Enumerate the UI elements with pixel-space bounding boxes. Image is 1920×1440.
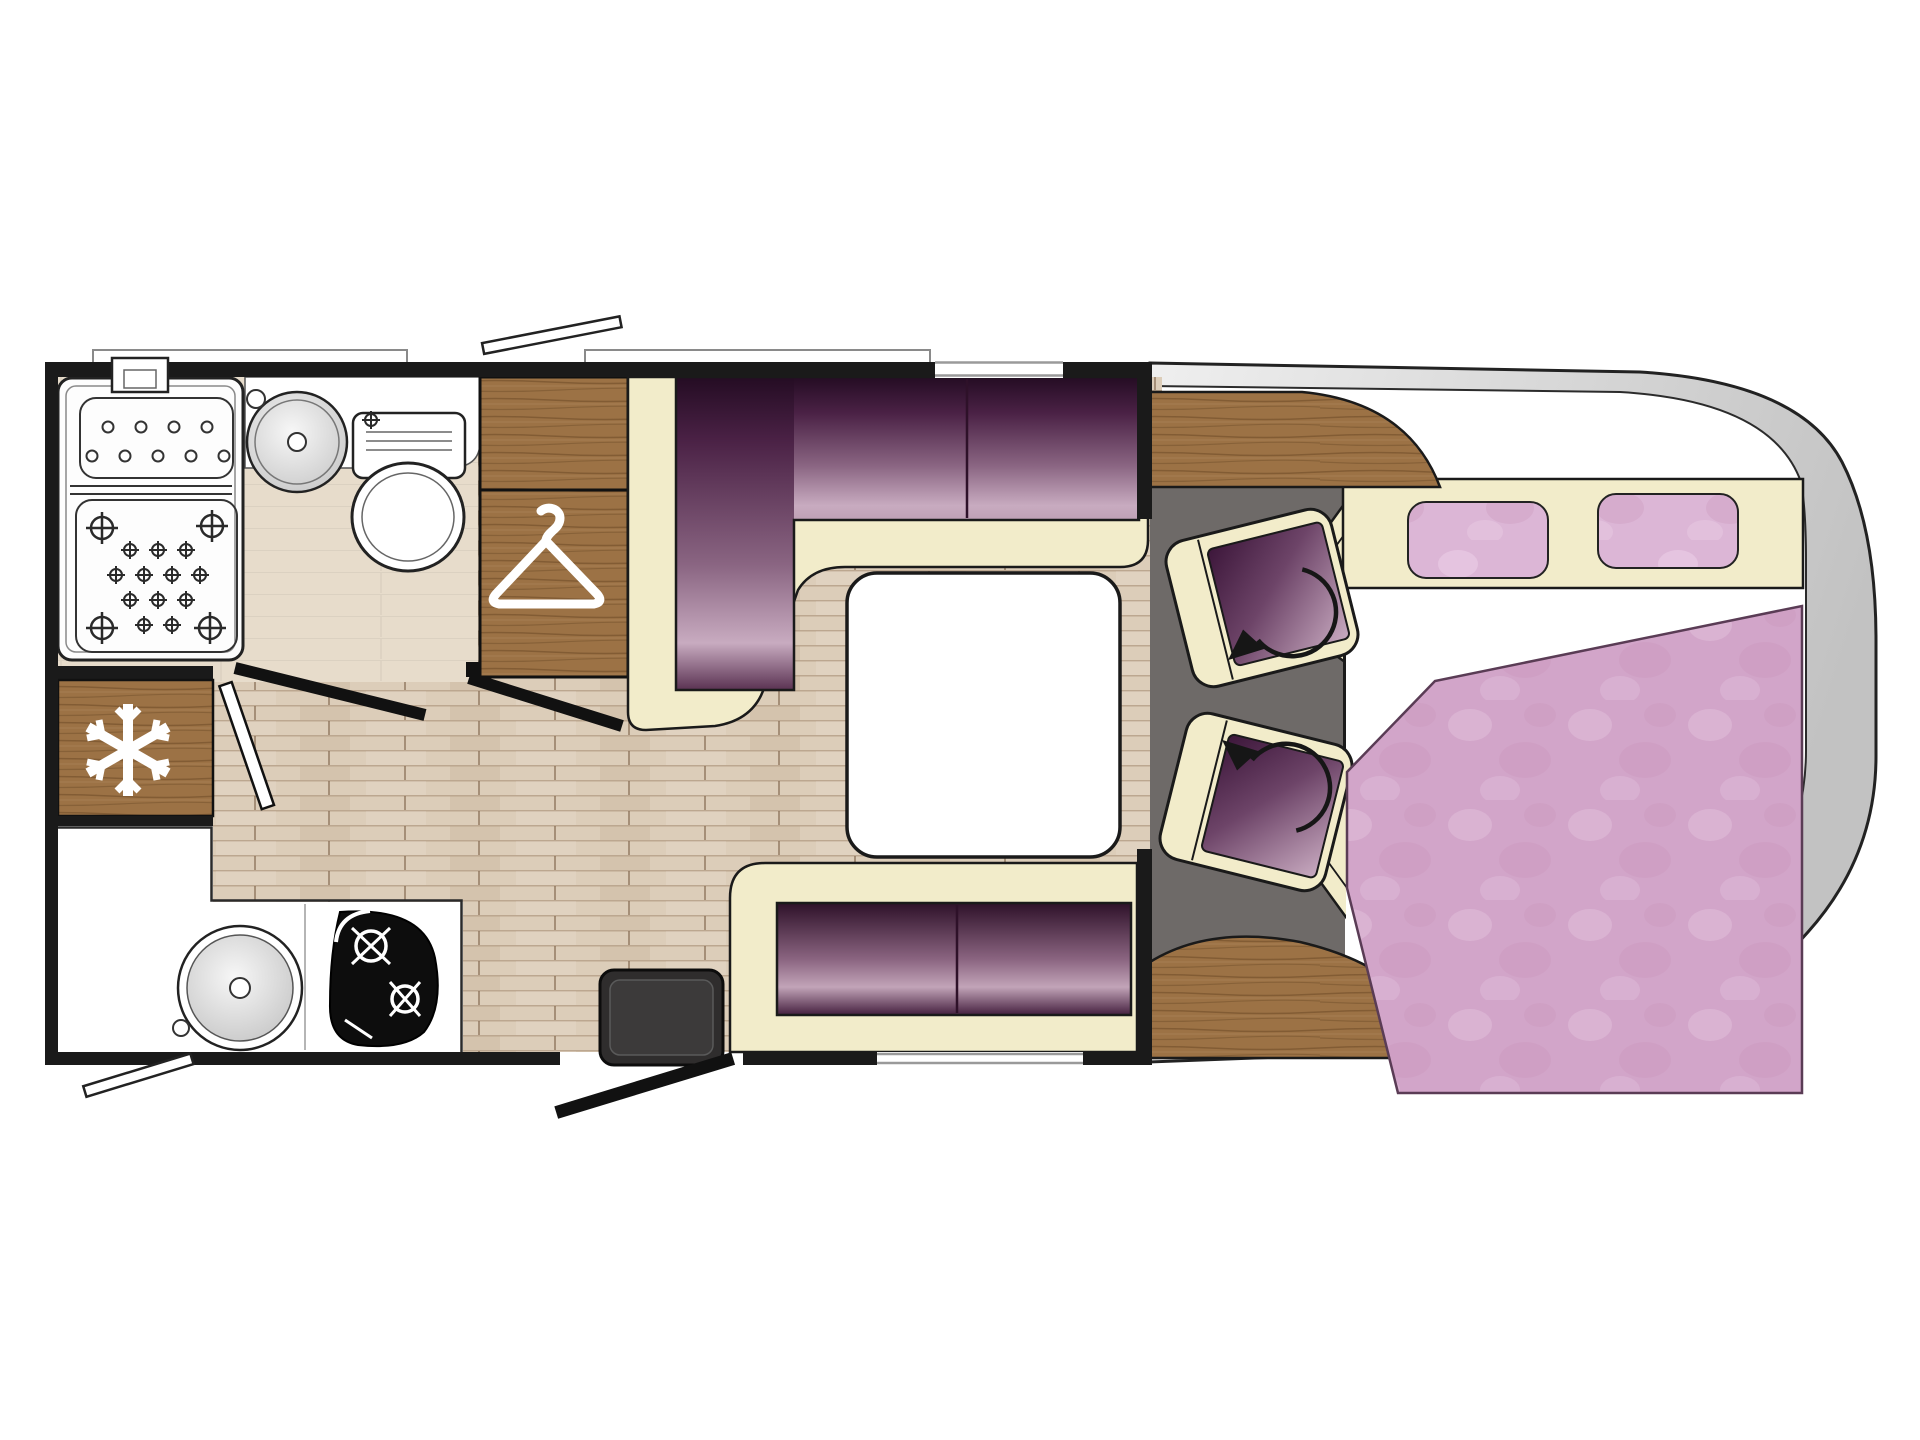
sink-tap: [173, 1020, 189, 1036]
dinette-rear-sofa: [730, 863, 1137, 1052]
roof-vent: [112, 358, 168, 392]
bottom-wall-left: [45, 1052, 560, 1065]
motorhome-floorplan: [0, 0, 1920, 1440]
refrigerator: [45, 680, 213, 826]
left-wall: [45, 362, 58, 1065]
window-frame: [585, 350, 930, 363]
pillow: [1408, 502, 1548, 578]
entry-step: [600, 970, 723, 1065]
dinette-table: [847, 573, 1120, 857]
wall-stub-bottom: [1137, 849, 1152, 1065]
wardrobe: [480, 377, 628, 677]
bathroom-wall: [45, 666, 213, 680]
shower-tray: [58, 378, 243, 660]
pillow: [1598, 494, 1738, 568]
window-bottom: [877, 1052, 1083, 1065]
window-top: [935, 360, 1063, 378]
wall-stub-top: [1137, 362, 1152, 519]
open-vent-top: [482, 316, 622, 354]
floorplan-drawing: [0, 0, 1920, 1440]
bottom-wall-right: [1083, 1052, 1152, 1065]
washbasin: [247, 390, 347, 492]
dinette-front-sofa-side-cushion: [676, 377, 794, 690]
toilet: [352, 411, 465, 571]
gas-hob: [330, 911, 438, 1046]
bottom-wall-mid: [743, 1052, 877, 1065]
basin-tap: [247, 390, 265, 408]
